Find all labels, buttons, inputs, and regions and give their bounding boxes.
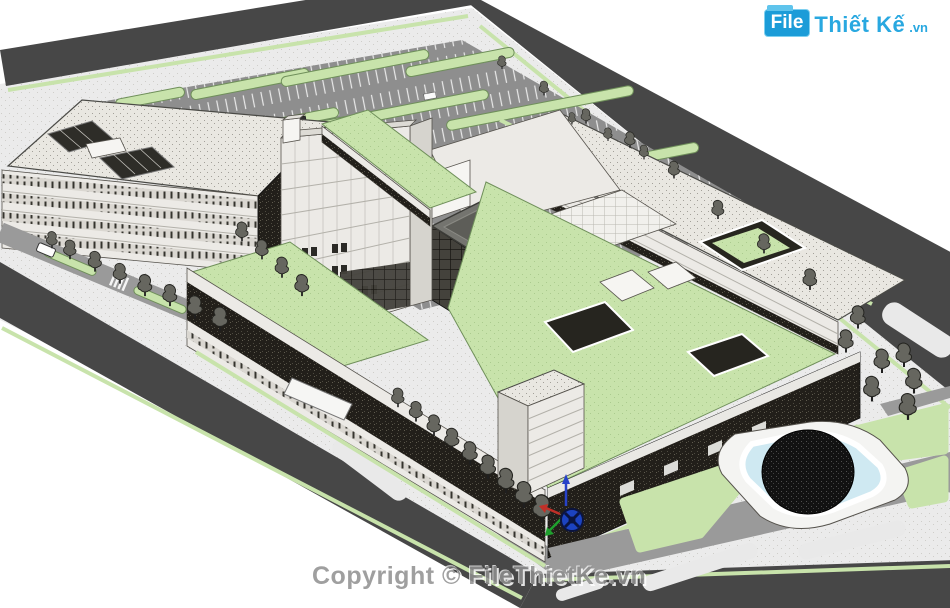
site-model-render xyxy=(0,0,950,608)
survey-point-icon xyxy=(561,509,583,531)
logo-file-box: File xyxy=(764,9,811,37)
copyright-watermark: Copyright © FileThietKe.vn xyxy=(312,562,646,591)
stair-core xyxy=(283,118,300,143)
dome-pavilion xyxy=(762,430,854,514)
logo-domain: .vn xyxy=(909,19,928,37)
model-viewport[interactable]: File Thiết Kế .vn Copyright © FileThietK… xyxy=(0,0,950,608)
logo-name: Thiết Kế xyxy=(814,13,905,37)
site-logo[interactable]: File Thiết Kế .vn xyxy=(764,9,928,37)
